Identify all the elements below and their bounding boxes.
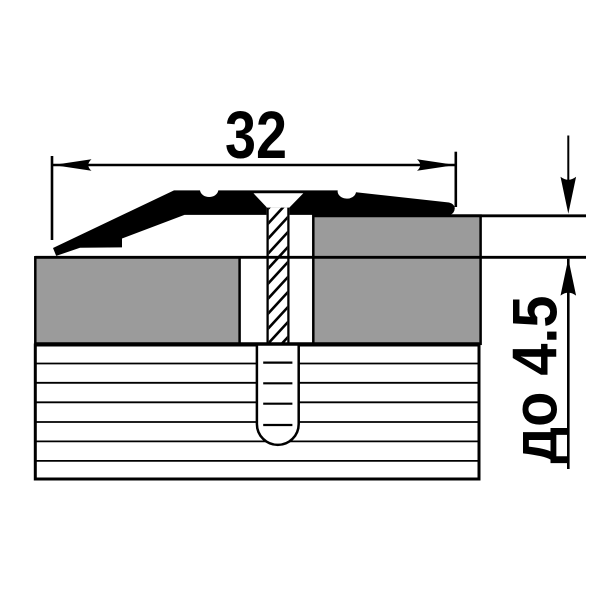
- svg-text:до 4.5: до 4.5: [501, 296, 571, 464]
- svg-text:32: 32: [225, 98, 287, 173]
